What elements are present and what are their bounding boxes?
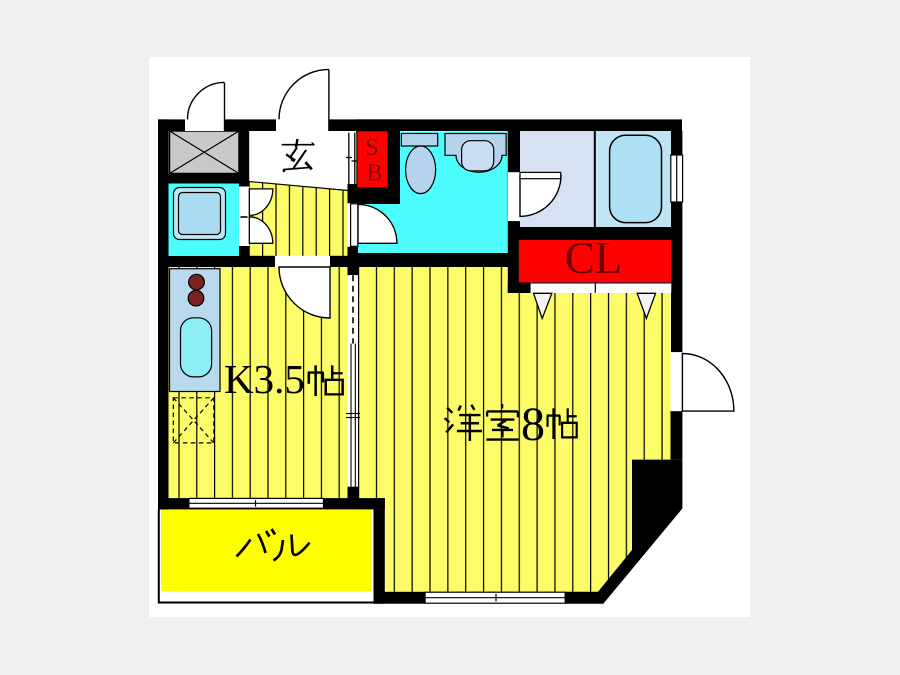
svg-text:K3.5: K3.5	[224, 356, 305, 402]
svg-text:S: S	[365, 135, 378, 161]
svg-text:8: 8	[521, 398, 545, 451]
svg-text:CL: CL	[565, 233, 623, 283]
svg-text:B: B	[366, 161, 382, 187]
